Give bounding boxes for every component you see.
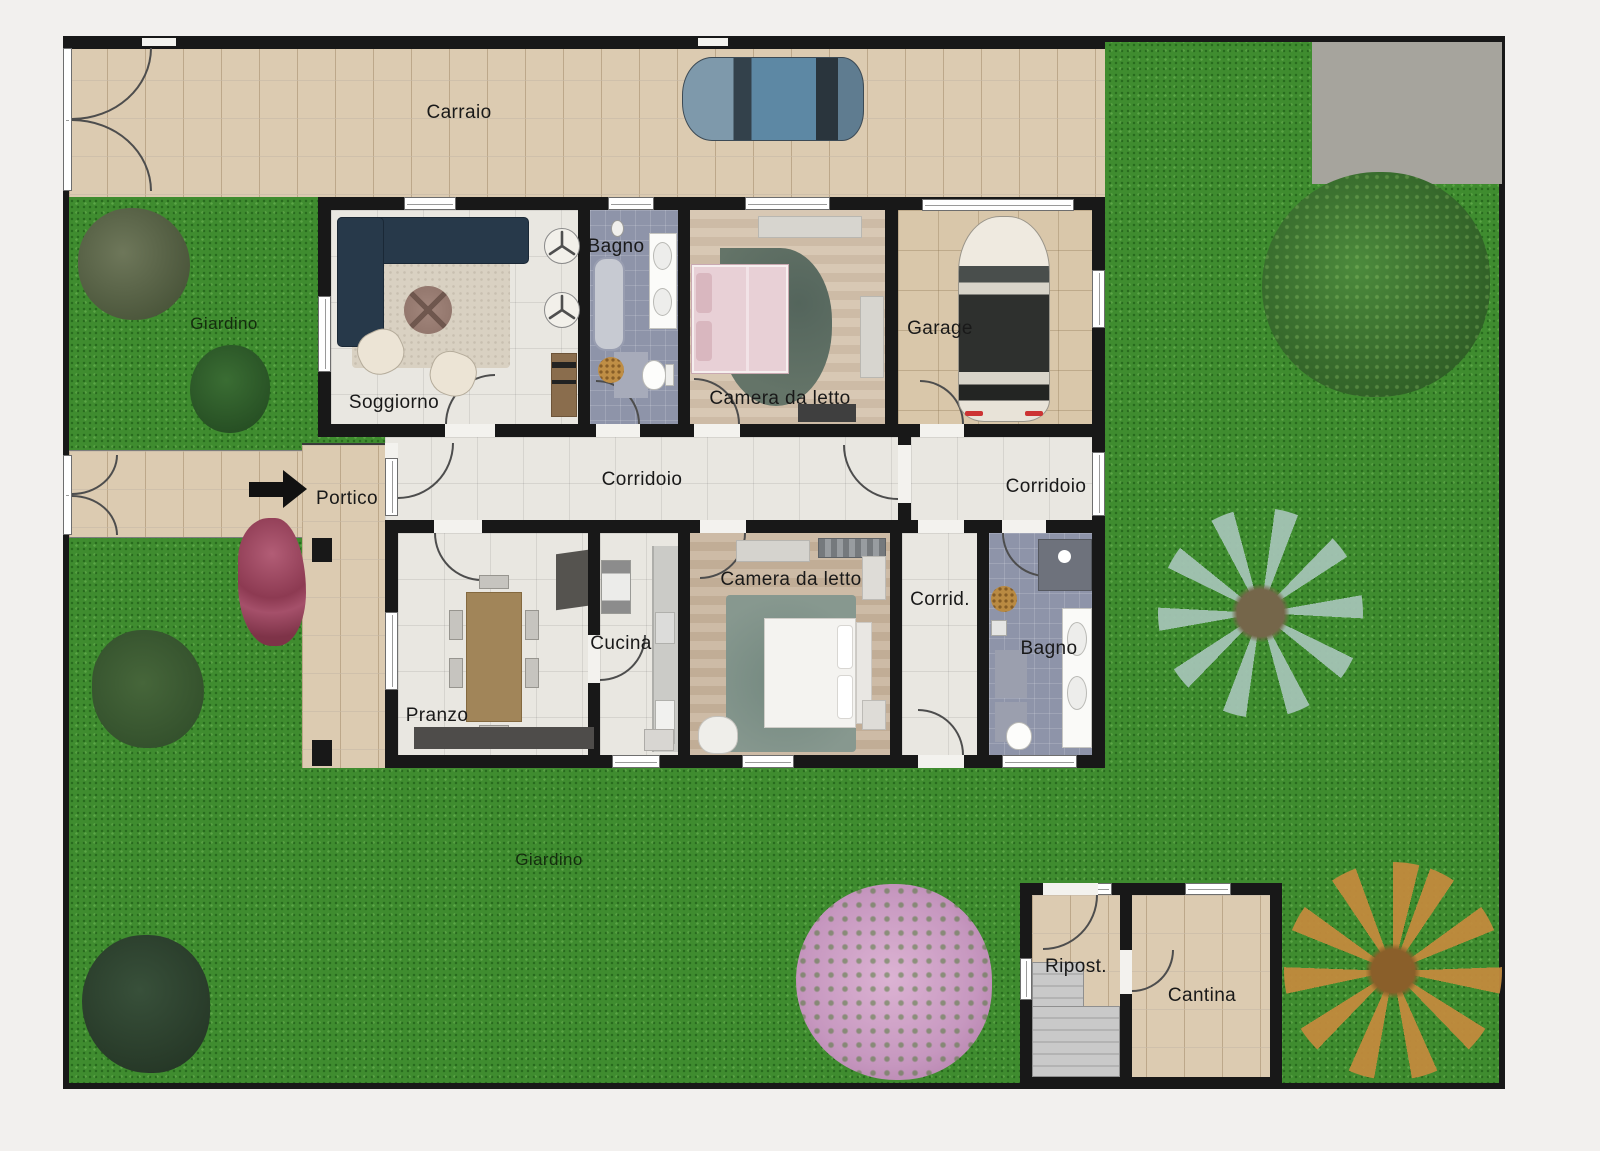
door-gap bbox=[700, 520, 746, 533]
pillow bbox=[837, 675, 853, 719]
double-bed bbox=[764, 618, 856, 728]
garage-door bbox=[922, 199, 1074, 211]
wall bbox=[977, 533, 989, 755]
label-corrid: Corrid. bbox=[910, 589, 970, 611]
label-portico: Portico bbox=[316, 488, 378, 510]
window bbox=[612, 755, 660, 768]
wall bbox=[678, 533, 690, 755]
fence-slit bbox=[142, 38, 176, 46]
door-gap bbox=[596, 424, 640, 437]
door-gap bbox=[1002, 520, 1046, 533]
driveway-carraio bbox=[69, 42, 1105, 197]
portico-pillar bbox=[312, 538, 332, 562]
ceiling-fan-icon bbox=[543, 291, 581, 329]
door-gap bbox=[898, 445, 911, 503]
bathtub bbox=[593, 257, 625, 351]
tree-blossom-pink bbox=[796, 884, 992, 1080]
label-cantina: Cantina bbox=[1168, 985, 1236, 1007]
entrance-arrow-icon bbox=[283, 470, 307, 508]
stool bbox=[698, 716, 738, 754]
wall bbox=[885, 210, 898, 424]
side-table bbox=[862, 700, 886, 730]
window bbox=[1092, 270, 1105, 328]
concrete-pad bbox=[1312, 42, 1502, 184]
kitchen-table-set bbox=[601, 560, 631, 614]
wall-lamp bbox=[611, 220, 624, 237]
driveway-gate bbox=[63, 48, 72, 191]
door-gap bbox=[918, 520, 964, 533]
dining-chair bbox=[449, 610, 463, 640]
corner-cabinet bbox=[556, 550, 588, 610]
window bbox=[1092, 452, 1105, 516]
toilet bbox=[642, 360, 666, 390]
window bbox=[385, 612, 398, 690]
shower bbox=[1038, 539, 1092, 591]
bush-white-flower bbox=[92, 630, 204, 748]
sideboard bbox=[414, 727, 594, 749]
window bbox=[745, 197, 830, 210]
pillow bbox=[696, 321, 712, 361]
car-on-driveway bbox=[682, 57, 864, 141]
label-pranzo: Pranzo bbox=[406, 705, 469, 727]
washer bbox=[991, 620, 1007, 636]
side-table bbox=[862, 556, 886, 600]
window bbox=[1185, 883, 1231, 895]
dining-chair bbox=[525, 658, 539, 688]
wall bbox=[890, 533, 902, 755]
tree-large-green bbox=[1262, 172, 1490, 397]
label-soggiorno: Soggiorno bbox=[349, 392, 439, 414]
label-giardino-top: Giardino bbox=[190, 314, 257, 334]
pillow bbox=[696, 273, 712, 313]
door-gap bbox=[1120, 950, 1132, 994]
wicker-basket bbox=[991, 586, 1017, 612]
door-gap bbox=[694, 424, 740, 437]
tree-autumn-orange bbox=[1284, 862, 1502, 1080]
double-bed bbox=[692, 265, 788, 373]
window bbox=[1002, 755, 1077, 768]
wall bbox=[1020, 1077, 1282, 1089]
stairs bbox=[1032, 1006, 1120, 1077]
car-taillight bbox=[1025, 411, 1043, 416]
label-bagno-top: Bagno bbox=[588, 236, 645, 258]
wall bbox=[1270, 883, 1282, 1089]
label-giardino-bottom: Giardino bbox=[515, 850, 582, 870]
window bbox=[404, 197, 456, 210]
label-garage: Garage bbox=[907, 318, 973, 340]
bush-green bbox=[190, 345, 270, 433]
wardrobe bbox=[818, 538, 886, 558]
wicker-basket bbox=[598, 357, 624, 383]
toilet-tank bbox=[665, 364, 674, 386]
label-camera-bottom: Camera da letto bbox=[720, 569, 861, 591]
sink bbox=[1067, 676, 1087, 710]
dresser bbox=[736, 540, 810, 562]
window bbox=[608, 197, 654, 210]
fence-slit bbox=[698, 38, 728, 46]
label-corridoio-main: Corridoio bbox=[602, 469, 683, 491]
entrance-arrow-icon bbox=[249, 482, 283, 497]
sofa-sectional bbox=[337, 217, 384, 347]
label-cucina: Cucina bbox=[590, 633, 652, 655]
tree-palm bbox=[1158, 508, 1363, 718]
coffee-table bbox=[404, 286, 452, 334]
window bbox=[1020, 958, 1032, 1000]
window bbox=[742, 755, 794, 768]
driveway-top-wall bbox=[63, 36, 1105, 49]
toilet bbox=[1006, 722, 1032, 750]
door-gap bbox=[445, 424, 495, 437]
pillow bbox=[837, 625, 853, 669]
bush-dark bbox=[82, 935, 210, 1073]
car-taillight bbox=[965, 411, 983, 416]
sink bbox=[653, 242, 672, 270]
blanket-fold bbox=[746, 267, 749, 371]
window bbox=[385, 458, 398, 516]
cooktop bbox=[655, 612, 675, 644]
garden-gate bbox=[63, 455, 72, 535]
bush-flowering bbox=[78, 208, 190, 320]
door-gap bbox=[920, 424, 964, 437]
door-gap bbox=[434, 520, 482, 533]
label-camera-top: Camera da letto bbox=[709, 388, 850, 410]
floor-plan-canvas: Carraio Giardino Soggiorno Bagno Camera … bbox=[0, 0, 1600, 1151]
entry-door-gap bbox=[385, 443, 398, 458]
bush-red bbox=[238, 518, 306, 646]
portico-pillar bbox=[312, 740, 332, 766]
door-gap bbox=[1043, 883, 1098, 895]
sink bbox=[653, 288, 672, 316]
dining-chair bbox=[449, 658, 463, 688]
window bbox=[318, 296, 331, 372]
ceiling-fan-icon bbox=[543, 227, 581, 265]
wardrobe bbox=[860, 296, 884, 378]
label-ripostiglio: Ripost. bbox=[1045, 956, 1107, 978]
media-console bbox=[551, 353, 577, 417]
label-corridoio-right: Corridoio bbox=[1006, 476, 1087, 498]
dining-chair bbox=[479, 575, 509, 589]
label-bagno-bottom: Bagno bbox=[1021, 638, 1078, 660]
kitchen-stool bbox=[644, 729, 674, 751]
dining-chair bbox=[525, 610, 539, 640]
shelf bbox=[758, 216, 862, 238]
wall bbox=[678, 210, 690, 424]
door-gap bbox=[918, 755, 964, 768]
shower-head-icon bbox=[1058, 550, 1071, 563]
dining-table bbox=[466, 592, 522, 722]
label-carraio: Carraio bbox=[426, 102, 491, 124]
